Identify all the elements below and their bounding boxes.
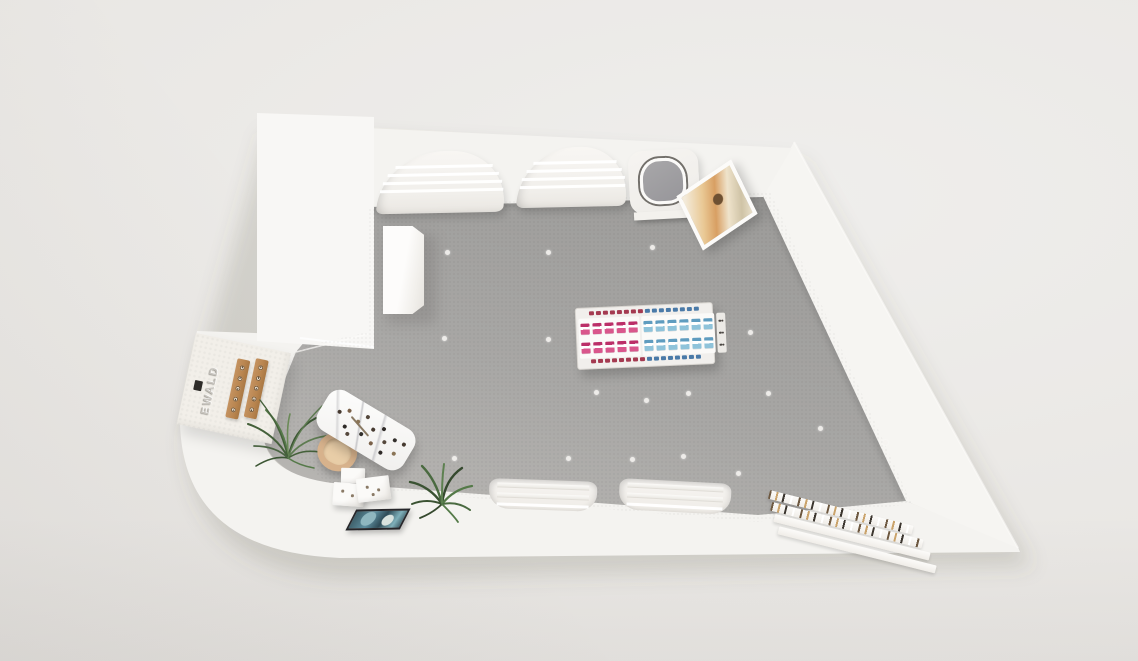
rim-product-mark (659, 308, 664, 312)
potted-plant-floor (404, 452, 476, 524)
jewelry-item (365, 415, 370, 420)
rim-product-mark (612, 358, 617, 362)
rim-product-mark (631, 309, 636, 313)
gondola-product-row (580, 321, 637, 334)
product-box (581, 342, 590, 353)
gondola-product-row (643, 318, 712, 332)
white-cabinet (383, 226, 424, 314)
gondola-product-row (581, 340, 638, 353)
shelf-row (627, 482, 723, 492)
product-box (616, 322, 625, 333)
product-box (617, 341, 626, 352)
shelf-row (533, 160, 616, 165)
ceiling-spot-dot (818, 426, 823, 431)
ceiling-spot-dot (566, 456, 571, 461)
rim-product-mark (682, 355, 687, 359)
jewelry-item (371, 427, 376, 432)
shelf-row (496, 492, 589, 500)
central-gondola-display (575, 302, 716, 370)
bottom-recessed-display-1 (489, 478, 598, 512)
jewelry-item (378, 450, 383, 455)
product-box (704, 337, 713, 348)
jewelry-item (368, 441, 373, 446)
jewelry-item (391, 451, 396, 456)
shelf-row (497, 482, 590, 490)
ceiling-spot-dot (681, 454, 686, 459)
rim-product-mark (596, 311, 601, 315)
jewelry-item (337, 409, 342, 414)
rim-product-mark (638, 309, 643, 313)
shelf-row (382, 180, 502, 185)
rim-product-mark (652, 308, 657, 312)
rim-product-mark (645, 309, 650, 313)
product-box (668, 339, 677, 350)
product-box (692, 338, 701, 349)
ceiling-spot-dot (644, 398, 649, 403)
product-box (680, 338, 689, 349)
jewelry-item (382, 440, 387, 445)
gondola-half-right (641, 313, 716, 356)
rim-product-mark (689, 355, 694, 359)
counter-card-reader (193, 380, 203, 391)
rim-product-mark (696, 355, 701, 359)
product-box (655, 320, 664, 331)
rim-product-mark (673, 308, 678, 312)
shelf-row (380, 188, 504, 194)
product-box (629, 340, 638, 351)
eyewear-slot (258, 365, 264, 371)
rim-product-mark (605, 359, 610, 363)
ceiling-spot-dot (650, 245, 655, 250)
ceiling-spot-dot (748, 330, 753, 335)
rim-product-mark (661, 356, 666, 360)
rim-product-mark (668, 356, 673, 360)
jewelry-item (342, 423, 347, 428)
rim-product-mark (675, 355, 680, 359)
rim-product-mark (619, 358, 624, 362)
product-box (691, 319, 700, 330)
end-cap-dot (721, 319, 724, 322)
eyewear-slot (239, 365, 245, 371)
rim-product-mark (591, 359, 596, 363)
product-box (592, 323, 601, 334)
jewelry-item (381, 426, 386, 431)
rim-product-mark (617, 310, 622, 314)
jewelry-item (345, 431, 350, 436)
floor-dots-layer (0, 0, 1138, 661)
rim-product-mark (633, 357, 638, 361)
ceiling-spot-dot (736, 471, 741, 476)
rim-product-mark (647, 357, 652, 361)
ceiling-spot-dot (546, 337, 551, 342)
shelf-row (526, 168, 622, 173)
ceiling-spot-dot (686, 391, 691, 396)
rim-product-mark (598, 359, 603, 363)
rim-product-mark (589, 311, 594, 315)
ceiling-spot-dot (442, 336, 447, 341)
rim-product-mark (694, 307, 699, 311)
jewelry-item (401, 442, 406, 447)
gondola-half-left (578, 316, 641, 359)
shelf-row (627, 492, 723, 502)
rim-product-mark (624, 310, 629, 314)
rim-product-mark (626, 358, 631, 362)
eyewear-slot (256, 375, 262, 381)
product-box (605, 341, 614, 352)
rim-product-mark (603, 311, 608, 315)
flat-artwork-cool (345, 509, 410, 531)
product-box (604, 322, 613, 333)
rim-product-mark (666, 308, 671, 312)
shelf-row (519, 184, 625, 189)
ceiling-spot-dot (766, 391, 771, 396)
shelf-row (496, 502, 589, 508)
jewelry-item (392, 437, 397, 442)
shelf-row (387, 172, 499, 177)
ceiling-spot-dot (445, 250, 450, 255)
rim-product-mark (687, 307, 692, 311)
product-box (644, 340, 653, 351)
jewelry-item (347, 408, 352, 413)
end-cap-dot (721, 331, 724, 334)
floorplan-render: EWALD (0, 0, 1138, 661)
display-cube-2 (356, 475, 392, 503)
shelf-row (522, 176, 625, 181)
shelf-row (396, 164, 493, 169)
bottom-recessed-display-2 (618, 478, 731, 515)
ceiling-spot-dot (883, 440, 888, 445)
eyewear-slot (237, 375, 243, 381)
rim-product-mark (610, 310, 615, 314)
ceiling-spot-dot (630, 457, 635, 462)
rim-product-mark (680, 307, 685, 311)
product-box (628, 321, 637, 332)
product-box (679, 319, 688, 330)
gondola-end-cap (716, 312, 727, 352)
product-box (593, 342, 602, 353)
ceiling-spot-dot (546, 250, 551, 255)
gondola-body (578, 313, 712, 359)
shelf-row (626, 502, 722, 510)
product-box (643, 321, 652, 332)
product-box (656, 339, 665, 350)
rim-product-mark (640, 357, 645, 361)
rim-product-mark (654, 356, 659, 360)
product-box (667, 320, 676, 331)
product-box (703, 318, 712, 329)
product-box (580, 323, 589, 334)
end-cap-dot (722, 343, 725, 346)
ceiling-spot-dot (594, 390, 599, 395)
gondola-product-row (644, 337, 713, 351)
